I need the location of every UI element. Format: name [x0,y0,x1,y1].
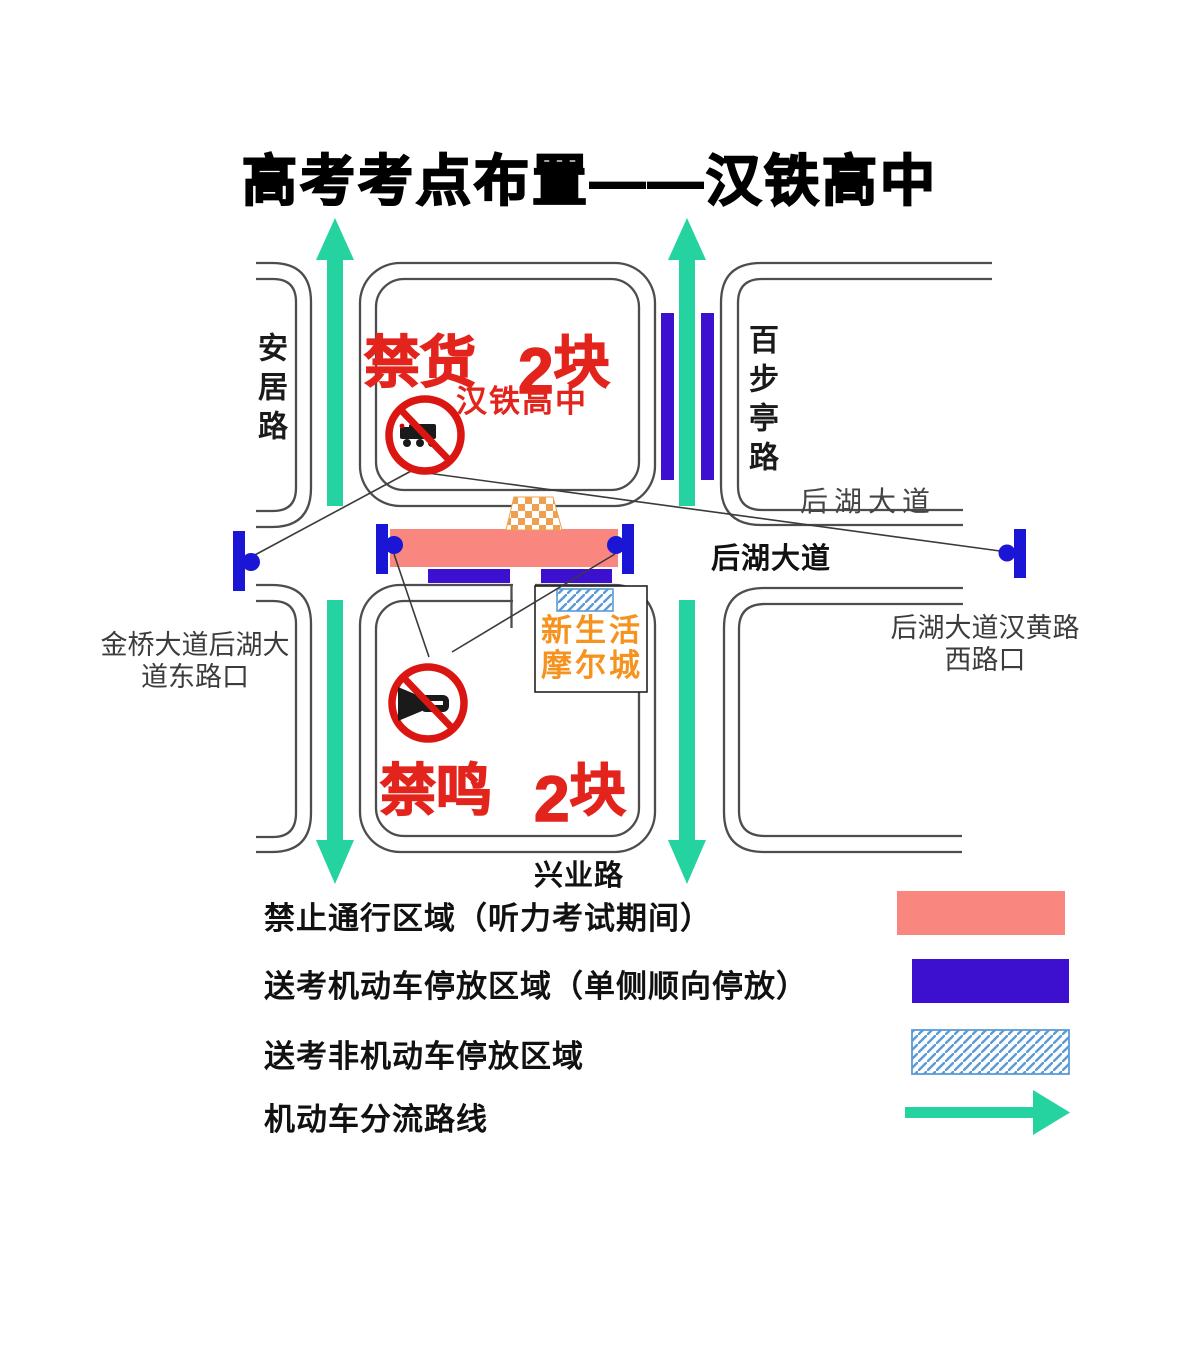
barrier-far-left-icon [233,531,260,591]
intersection-hanhuang-line1: 后湖大道汉黄路 [875,612,1095,644]
page-title: 高考考点布置——汉铁高中 [0,136,1180,216]
no-horn-sign-icon [392,667,464,739]
no-horn-annotation: 禁鸣 2 块 [380,746,626,827]
parking-bar-horizontal-left [428,569,510,583]
road-barriers [233,524,1026,591]
nonmotor-parking-area [557,589,613,611]
traffic-map-page: 高考考点布置——汉铁高中 禁货 2 块 汉铁高中 禁鸣 2 块 安居路 百步亭路… [0,0,1200,1365]
no-horn-label: 禁鸣 [380,746,492,827]
intersection-jinqiao-line2: 道东路口 [85,661,305,693]
parking-bar-horizontal-right [541,569,612,583]
parking-bar-vertical-right [701,313,714,480]
flow-arrow-down-right-icon [668,600,706,884]
no-truck-sign-icon [389,399,461,471]
legend-item-nonmotor: 送考非机动车停放区域 [264,1031,584,1076]
road-label-houhu-road: 后湖大道 [711,535,831,577]
road-label-houhu-block: 后湖大道 [800,480,936,520]
flow-arrow-down-left-icon [316,600,354,884]
mall-label-line2: 摩尔城 [541,648,643,683]
no-horn-qty-num: 2 [534,771,570,827]
legend-item-parking: 送考机动车停放区域（单侧顺向停放） [264,961,808,1006]
legend-item-closed-area: 禁止通行区域（听力考试期间） [264,893,712,938]
road-label-xingye: 兴业路 [534,852,624,894]
intersection-hanhuang-line2: 西路口 [875,644,1095,676]
legend-swatches [897,891,1070,1135]
block-bottom-left-outer [256,585,311,852]
legend-swatch-flow-arrow-icon [905,1090,1070,1135]
road-label-baibuting: 百步亭路 [738,324,782,480]
closed-road-area [390,529,618,567]
barrier-far-right-icon [999,529,1027,578]
school-gate-checker [506,497,562,530]
legend-swatch-closed-area [897,891,1065,935]
mall-label: 新生活 摩尔城 [541,613,643,683]
mall-label-line1: 新生活 [541,613,643,648]
intersection-label-hanhuang: 后湖大道汉黄路 西路口 [875,612,1095,676]
flow-arrow-up-left-icon [316,218,354,506]
intersection-jinqiao-line1: 金桥大道后湖大 [85,629,305,661]
school-name-label: 汉铁高中 [456,376,588,421]
parking-bar-vertical-left [661,313,674,480]
legend-swatch-parking [912,959,1069,1003]
intersection-label-jinqiao: 金桥大道后湖大 道东路口 [85,629,305,693]
legend-swatch-nonmotor [912,1030,1069,1074]
legend-item-flow: 机动车分流路线 [264,1094,488,1139]
road-label-anju: 安居路 [247,332,291,449]
no-horn-qty-unit: 块 [570,746,626,827]
